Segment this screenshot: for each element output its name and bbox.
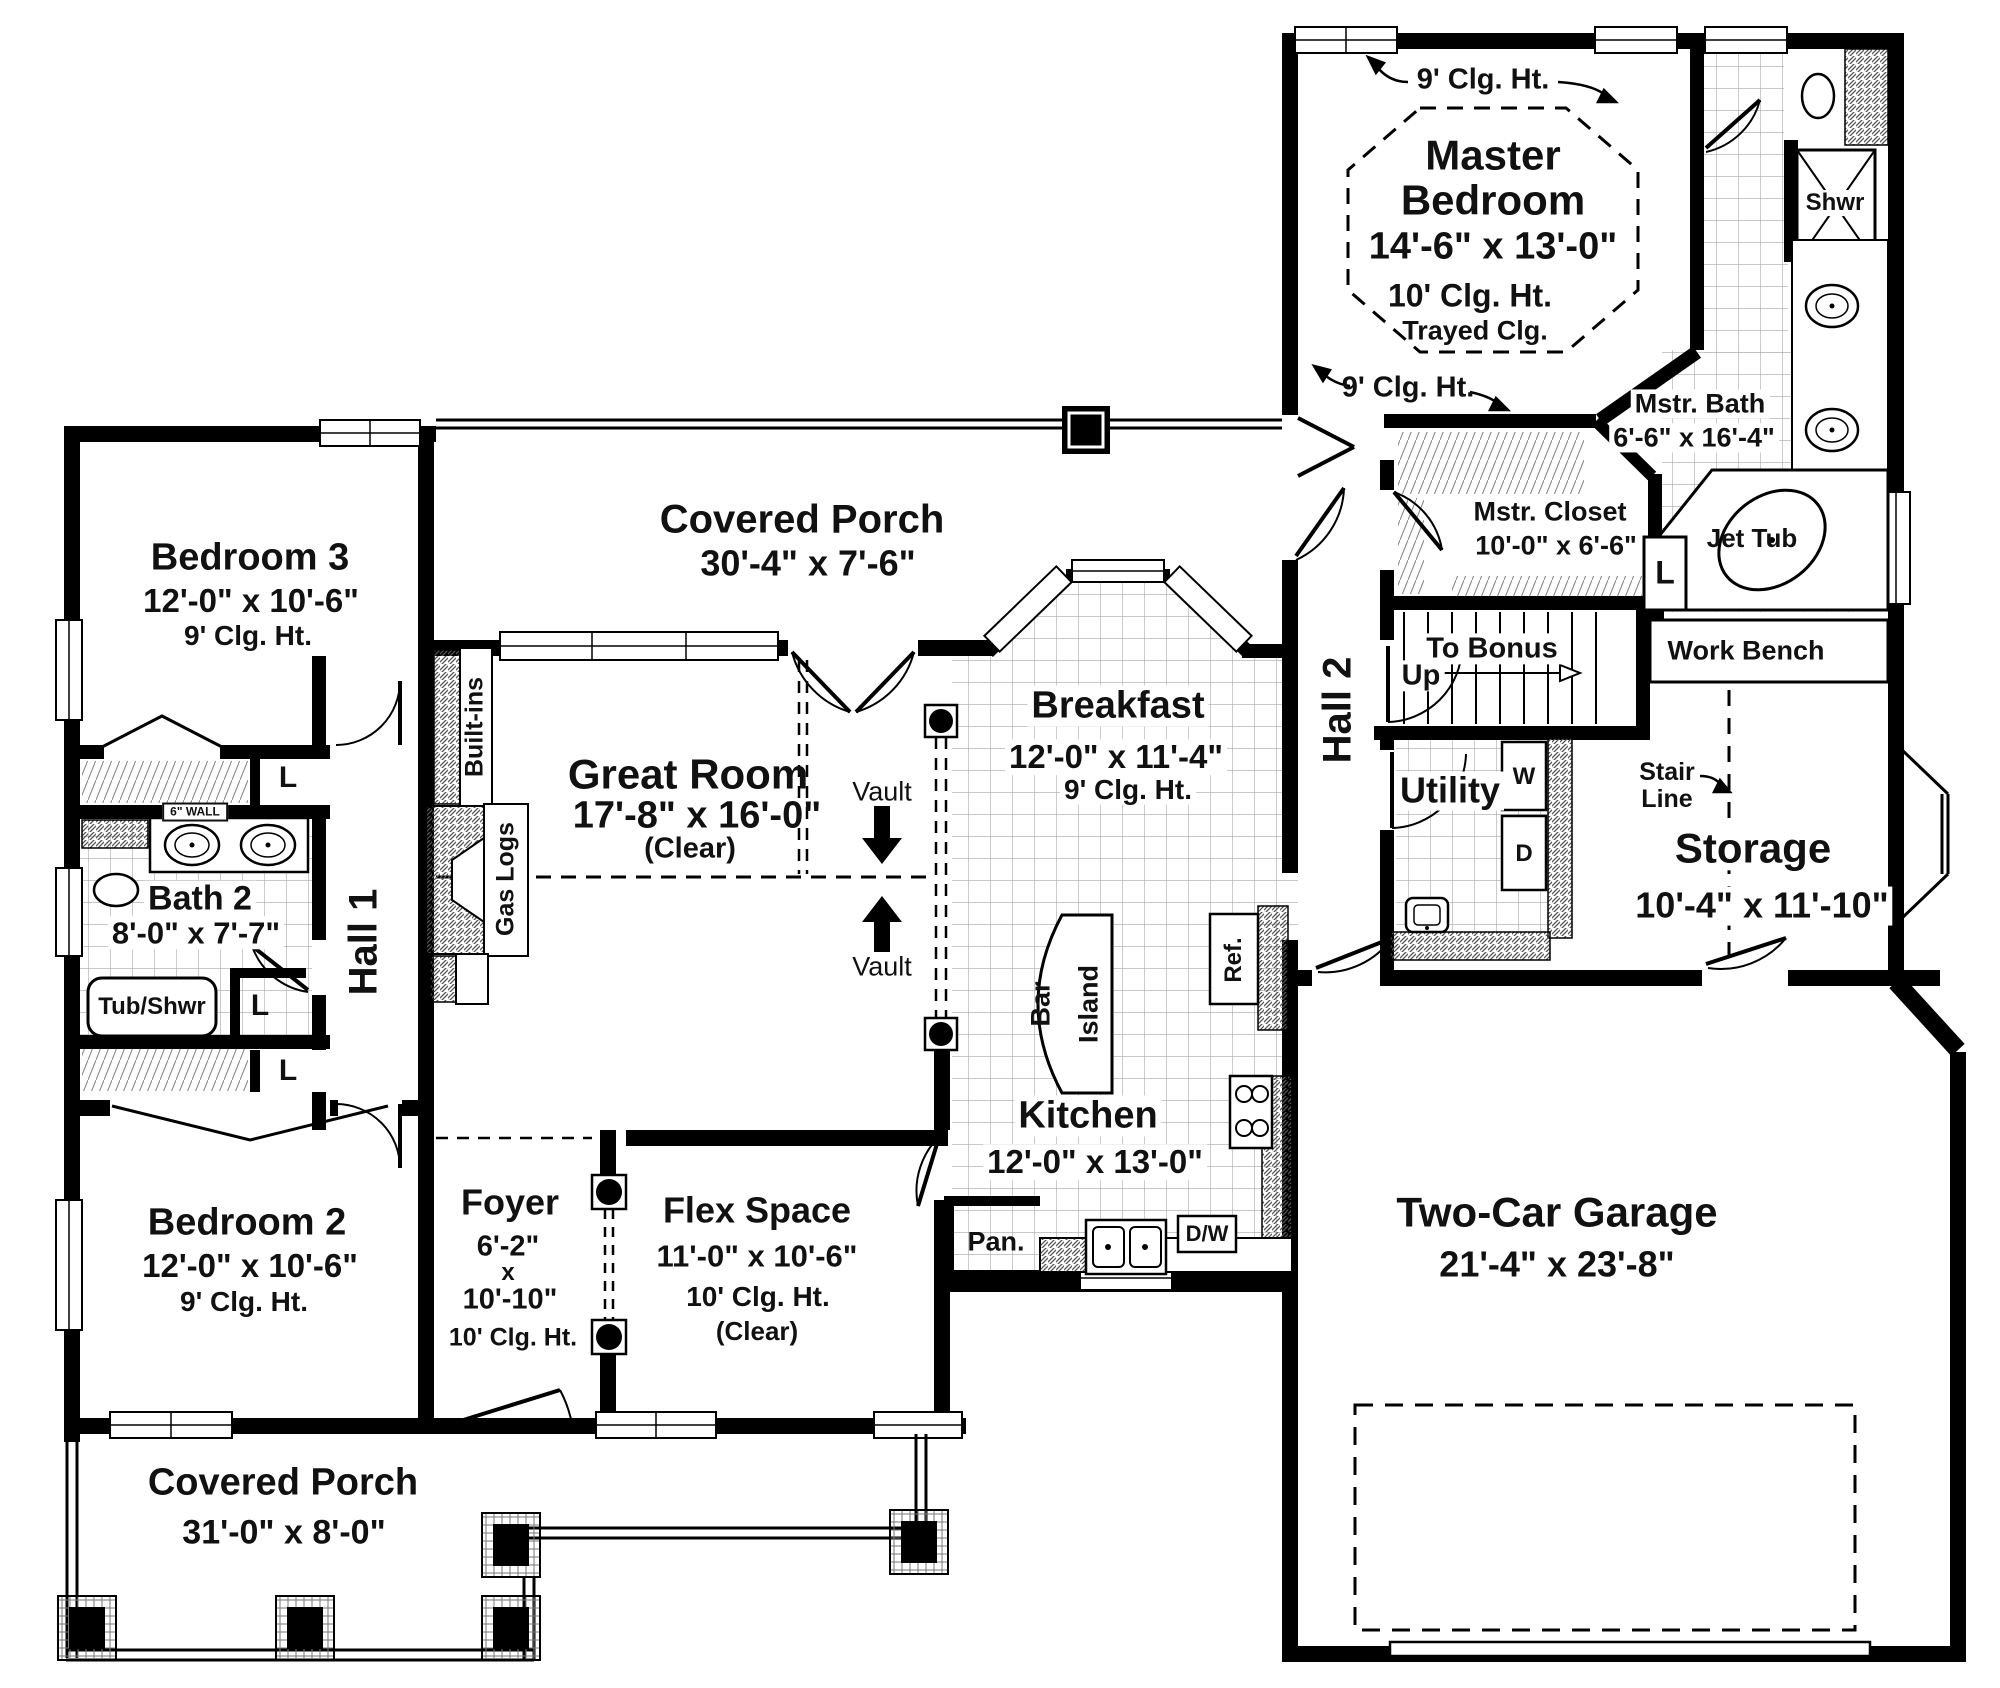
tub-shower-label: Tub/Shwr [98, 994, 206, 1020]
flex-clg: 10' Clg. Ht. [686, 1282, 830, 1312]
foyer-length: 10'-10" [463, 1284, 558, 1315]
stair-line-label: Stair Line [1624, 759, 1710, 813]
vault-label-top: Vault [852, 777, 912, 806]
washer-label: W [1513, 764, 1536, 790]
dishwasher-label: D/W [1186, 1222, 1229, 1246]
flex-clear: (Clear) [716, 1317, 798, 1345]
foyer-clg: 10' Clg. Ht. [449, 1325, 577, 1352]
kitchen-name: Kitchen [1014, 1095, 1161, 1136]
mstr-bath-dims: 6'-6" x 16'-4" [1609, 423, 1779, 452]
porch-bottom-dims: 31'-0" x 8'-0" [182, 1515, 385, 1552]
foyer-x: x [501, 1260, 514, 1286]
mstr-closet-dims: 10'-0" x 6'-6" [1471, 531, 1641, 560]
great-room-name: Great Room [568, 751, 808, 796]
great-room-dims: 17'-8" x 16'-0" [573, 795, 821, 836]
porch-bottom-name: Covered Porch [148, 1462, 418, 1503]
mstr-bath-name: Mstr. Bath [1631, 389, 1770, 418]
shower-label: Shwr [1802, 190, 1869, 216]
utility-name: Utility [1396, 772, 1504, 811]
up-label: Up [1398, 660, 1445, 691]
bar-label: Bar [1026, 981, 1055, 1026]
six-inch-wall-label: 6" WALL [162, 803, 228, 822]
hall1-name: Hall 1 [342, 889, 385, 996]
vault-label-bottom: Vault [852, 952, 912, 981]
flex-dims: 11'-0" x 10'-6" [657, 1239, 858, 1272]
bedroom2-name: Bedroom 2 [148, 1202, 346, 1243]
clg9-annotation-mid: 9' Clg. Ht. [1342, 372, 1475, 403]
bedroom3-name: Bedroom 3 [151, 537, 349, 578]
stairs-up-arrow [1560, 665, 1580, 681]
linen-closet-1: L [279, 762, 297, 794]
storage-bay-window [1900, 748, 1948, 920]
linen-closet-2: L [251, 990, 269, 1022]
jet-tub-label: Jet Tub [1707, 524, 1798, 552]
bedroom3-dims: 12'-0" x 10'-6" [143, 583, 359, 619]
breakfast-dims: 12'-0" x 11'-4" [1005, 739, 1227, 775]
hall2-name: Hall 2 [1316, 657, 1359, 764]
porch-top-dims: 30'-4" x 7'-6" [700, 545, 915, 584]
dryer-label: D [1515, 841, 1532, 867]
bath2-dims: 8'-0" x 7'-7" [108, 916, 284, 949]
master-bedroom-dims: 14'-6" x 13'-0" [1369, 226, 1617, 267]
master-bedroom-name: Master Bedroom [1328, 133, 1658, 224]
linen-closet-master: L [1655, 556, 1675, 591]
work-bench-label: Work Bench [1667, 636, 1824, 665]
porch-top-name: Covered Porch [660, 498, 945, 541]
clg9-annotation-top: 9' Clg. Ht. [1417, 64, 1550, 95]
bedroom3-clg: 9' Clg. Ht. [184, 621, 312, 651]
foyer-name: Foyer [461, 1184, 559, 1223]
storage-name: Storage [1671, 825, 1835, 870]
storage-dims: 10'-4" x 11'-10" [1631, 887, 1892, 926]
bedroom2-dims: 12'-0" x 10'-6" [142, 1248, 358, 1284]
breakfast-name: Breakfast [1027, 685, 1208, 726]
foyer-width: 6'-2" [477, 1231, 540, 1262]
mstr-closet-name: Mstr. Closet [1469, 497, 1630, 526]
floor-plan: Covered Porch 30'-4" x 7'-6" 9' Clg. Ht.… [0, 0, 2000, 1688]
garage-name: Two-Car Garage [1396, 1189, 1717, 1234]
breakfast-clg: 9' Clg. Ht. [1060, 775, 1196, 805]
kitchen-dims: 12'-0" x 13'-0" [983, 1144, 1207, 1180]
island-label: Island [1074, 965, 1103, 1043]
refrigerator-label: Ref. [1221, 937, 1247, 982]
garage-door-outline [1355, 1405, 1855, 1630]
master-bedroom-clg: 10' Clg. Ht. [1388, 279, 1552, 314]
garage-dims: 21'-4" x 23'-8" [1439, 1246, 1674, 1285]
vault-arrows [862, 806, 902, 952]
gas-logs-label: Gas Logs [493, 822, 520, 936]
great-room-clear: (Clear) [644, 833, 736, 864]
bath2-name: Bath 2 [144, 881, 256, 918]
built-ins-label: Built-ins [462, 677, 489, 777]
linen-closet-3: L [279, 1055, 297, 1087]
garage-door [1390, 1642, 1870, 1656]
pantry-label: Pan. [967, 1227, 1024, 1256]
top-porch-edge [436, 420, 1282, 428]
flex-name: Flex Space [663, 1192, 851, 1231]
bedroom2-clg: 9' Clg. Ht. [180, 1287, 308, 1317]
master-bedroom-trayed: Trayed Clg. [1402, 316, 1548, 345]
